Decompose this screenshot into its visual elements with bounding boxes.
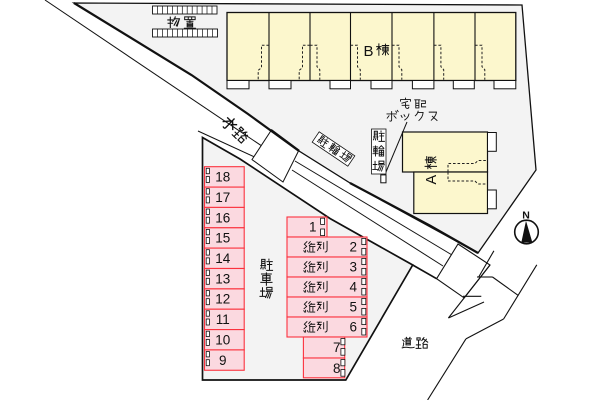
- svg-text:6: 6: [349, 320, 357, 335]
- svg-text:17: 17: [215, 190, 230, 205]
- svg-text:9: 9: [219, 353, 227, 368]
- svg-text:5: 5: [349, 300, 357, 315]
- svg-text:12: 12: [215, 292, 230, 307]
- svg-text:8: 8: [333, 361, 341, 376]
- svg-text:14: 14: [215, 251, 231, 266]
- svg-text:B: B: [364, 43, 374, 60]
- svg-text:18: 18: [215, 170, 230, 185]
- svg-text:A: A: [424, 175, 440, 185]
- svg-text:10: 10: [215, 333, 230, 348]
- svg-text:3: 3: [349, 260, 357, 275]
- svg-text:2: 2: [349, 240, 357, 255]
- svg-text:4: 4: [349, 280, 357, 295]
- svg-text:11: 11: [216, 312, 230, 327]
- svg-text:1: 1: [309, 220, 317, 235]
- svg-text:7: 7: [333, 340, 341, 355]
- svg-text:16: 16: [215, 210, 230, 225]
- svg-text:13: 13: [215, 271, 230, 286]
- svg-text:15: 15: [215, 231, 230, 246]
